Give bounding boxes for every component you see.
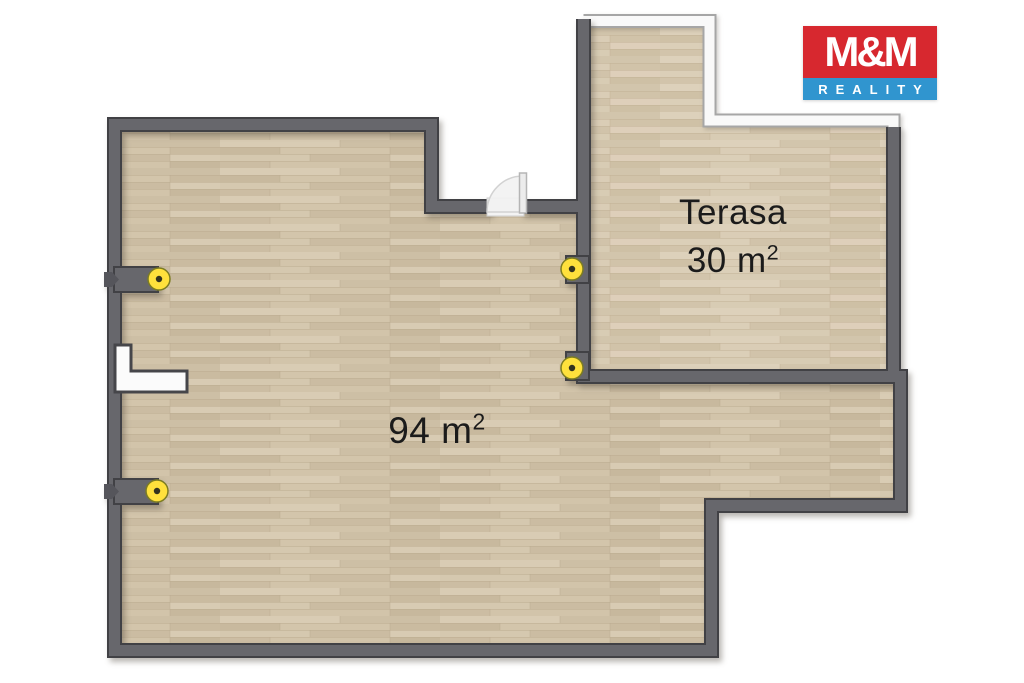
terrace-label: Terasa 30 m2 [633, 189, 833, 284]
terrace-area: 30 m2 [633, 237, 833, 285]
door-leaf [520, 173, 527, 213]
marker-dot-icon [146, 480, 168, 502]
marker-dot-icon [148, 268, 170, 290]
logo-tagline: REALITY [803, 78, 937, 100]
marker-dot-icon [561, 258, 583, 280]
door-swing-arc [487, 176, 523, 212]
agency-logo: M&M REALITY [803, 26, 937, 100]
logo-name: M&M [803, 26, 937, 78]
main-room-area: 94 m2 [337, 406, 537, 456]
floor-plan-drawing [0, 0, 1024, 683]
floor-plan-canvas: Terasa 30 m2 94 m2 M&M REALITY [0, 0, 1024, 683]
main-room-label: 94 m2 [337, 406, 537, 456]
marker-dot-icon [561, 357, 583, 379]
terrace-name: Terasa [633, 189, 833, 237]
entry-door [487, 173, 527, 216]
